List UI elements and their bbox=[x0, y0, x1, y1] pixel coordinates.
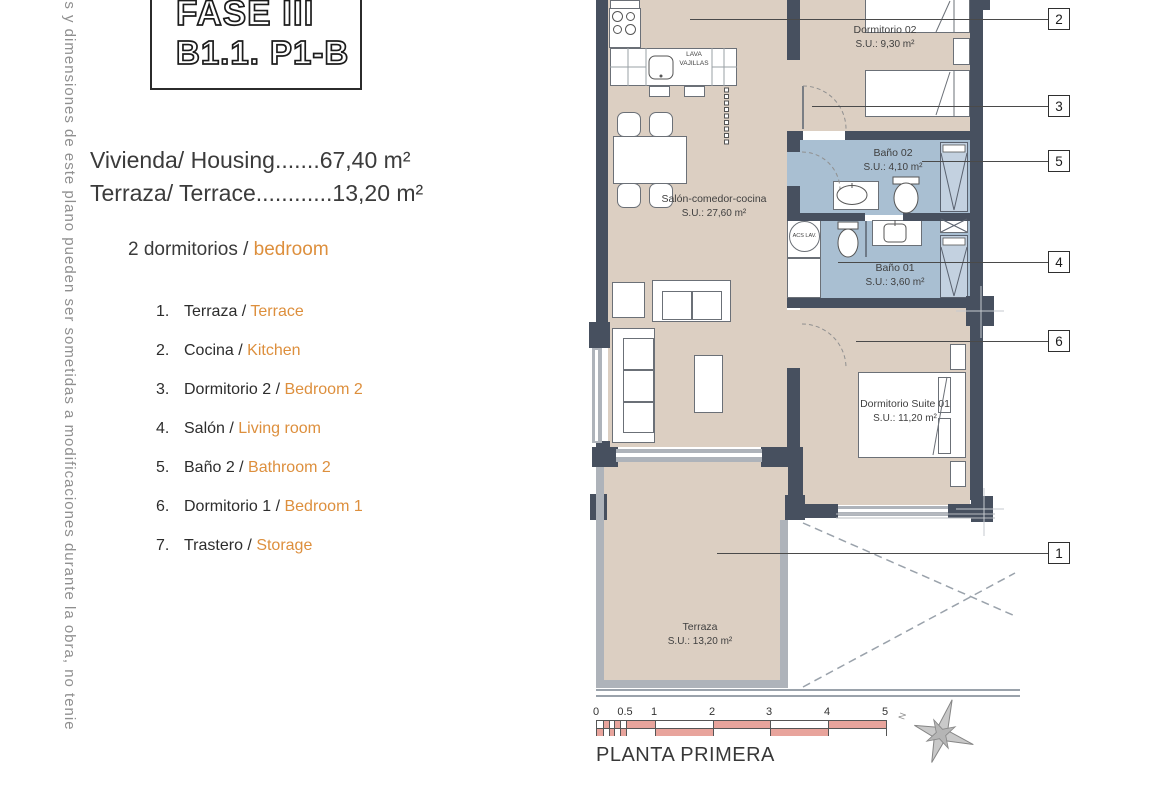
room-name: Dormitorio Suite 01 bbox=[835, 398, 975, 412]
room-area: S.U.: 3,60 m² bbox=[825, 276, 965, 289]
room-label-terrace: Terraza S.U.: 13,20 m² bbox=[630, 621, 770, 648]
hall-floor bbox=[787, 60, 800, 131]
water-heater-label: ACS LAV. bbox=[793, 233, 817, 240]
legend-es: Dormitorio 1 / bbox=[184, 498, 284, 515]
unit-code: B1.1. P1-B bbox=[176, 34, 360, 72]
room-label-suite: Dormitorio Suite 01 S.U.: 11,20 m² bbox=[835, 398, 975, 425]
window-core bbox=[616, 453, 762, 457]
nightstand bbox=[950, 461, 966, 487]
callout-kitchen: 2 bbox=[1048, 8, 1070, 30]
phase-title: FASE III bbox=[176, 0, 360, 34]
callout-terrace: 1 bbox=[1048, 542, 1070, 564]
bathroom1-vanity bbox=[872, 220, 922, 246]
floor-title: PLANTA PRIMERA bbox=[596, 744, 775, 767]
scale-tick: 0 bbox=[593, 706, 599, 718]
legend-en: Living room bbox=[238, 420, 321, 437]
bathroom2-vanity bbox=[833, 181, 879, 210]
legend-item-bano2: 5.Baño 2 / Bathroom 2 bbox=[156, 459, 363, 476]
scale-bar-graphic bbox=[596, 720, 887, 736]
room-legend: 1.Terraza / Terrace 2.Cocina / Kitchen 3… bbox=[156, 303, 363, 576]
legend-item-dormitorio1: 6.Dormitorio 1 / Bedroom 1 bbox=[156, 498, 363, 515]
scale-bar: 0 0.5 1 2 3 4 5 bbox=[594, 706, 890, 742]
wall-pillar bbox=[589, 322, 610, 348]
legend-es: Salón / bbox=[184, 420, 238, 437]
legend-en: Storage bbox=[256, 537, 312, 554]
legend-num: 6. bbox=[156, 498, 184, 515]
area-summary: Vivienda/ Housing.......67,40 m² Terraza… bbox=[90, 144, 423, 210]
wall-segment bbox=[970, 0, 983, 500]
window-core bbox=[595, 350, 598, 441]
room-area: S.U.: 11,20 m² bbox=[835, 412, 975, 425]
bed-single bbox=[865, 70, 970, 117]
legend-en: Terrace bbox=[250, 303, 303, 320]
water-heater-icon: ACS LAV. bbox=[789, 221, 820, 252]
legend-num: 1. bbox=[156, 303, 184, 320]
phase-title-box: FASE III B1.1. P1-B bbox=[150, 0, 362, 90]
scale-tick: 5 bbox=[882, 706, 888, 718]
legend-es: Baño 2 / bbox=[184, 459, 248, 476]
wall-segment bbox=[800, 504, 838, 518]
scale-tick: 4 bbox=[824, 706, 830, 718]
wall-pillar bbox=[971, 496, 993, 522]
terrace-area-line: Terraza/ Terrace............13,20 m² bbox=[90, 177, 423, 210]
room-label-bathroom1: Baño 01 S.U.: 3,60 m² bbox=[825, 262, 965, 289]
nightstand bbox=[950, 344, 966, 370]
terrace-floor bbox=[604, 462, 788, 684]
dining-table bbox=[613, 136, 687, 184]
scale-tick: 2 bbox=[709, 706, 715, 718]
room-label-salon: Salón-comedor-cocina S.U.: 27,60 m² bbox=[644, 193, 784, 220]
legend-item-terraza: 1.Terraza / Terrace bbox=[156, 303, 363, 320]
side-table bbox=[612, 282, 645, 318]
room-name: Baño 02 bbox=[823, 147, 963, 161]
legend-en: Bedroom 1 bbox=[284, 498, 362, 515]
leader-line bbox=[922, 161, 1048, 162]
sofa-three-seat bbox=[612, 328, 655, 443]
coffee-table bbox=[694, 355, 723, 413]
wall-segment bbox=[596, 0, 608, 322]
legend-num: 2. bbox=[156, 342, 184, 359]
room-label-bedroom2: Dormitorio 02 S.U.: 9,30 m² bbox=[815, 24, 955, 51]
wall-segment bbox=[787, 368, 800, 447]
terrace-wall bbox=[780, 520, 788, 688]
floorplan-page: es y dimensiones de este plano pueden se… bbox=[0, 0, 1170, 785]
legend-es: Trastero / bbox=[184, 537, 256, 554]
stool bbox=[684, 86, 705, 97]
compass-north-label: N bbox=[896, 711, 908, 721]
legend-item-trastero: 7.Trastero / Storage bbox=[156, 537, 363, 554]
bedrooms-subtitle-es: 2 dormitorios / bbox=[128, 239, 254, 260]
room-name: Baño 01 bbox=[825, 262, 965, 276]
leader-line bbox=[856, 341, 1048, 342]
wall-pillar bbox=[972, 0, 990, 10]
legend-es: Terraza / bbox=[184, 303, 250, 320]
dishwasher-label: LAVA VAJILLAS bbox=[672, 51, 716, 69]
dining-chair bbox=[617, 112, 641, 137]
wall-segment bbox=[592, 447, 618, 467]
callout-living: 4 bbox=[1048, 251, 1070, 273]
stove bbox=[609, 8, 641, 48]
stool bbox=[649, 86, 670, 97]
legend-num: 3. bbox=[156, 381, 184, 398]
window-core bbox=[838, 509, 948, 512]
wall-segment bbox=[787, 298, 982, 308]
wall-pillar bbox=[966, 296, 994, 326]
legend-en: Bathroom 2 bbox=[248, 459, 331, 476]
suite-hall-floor bbox=[787, 310, 800, 368]
room-area: S.U.: 13,20 m² bbox=[630, 635, 770, 648]
wall-segment bbox=[788, 447, 803, 497]
room-name: Salón-comedor-cocina bbox=[644, 193, 784, 207]
room-area: S.U.: 27,60 m² bbox=[644, 207, 784, 220]
legend-en: Bedroom 2 bbox=[284, 381, 362, 398]
room-area: S.U.: 9,30 m² bbox=[815, 38, 955, 51]
legend-num: 5. bbox=[156, 459, 184, 476]
wall-segment bbox=[787, 0, 800, 60]
wall-segment bbox=[787, 140, 800, 152]
room-name: Terraza bbox=[630, 621, 770, 635]
sofa-two-seat bbox=[652, 280, 731, 322]
bedrooms-subtitle-en: bedroom bbox=[254, 239, 329, 260]
dining-chair bbox=[649, 112, 673, 137]
nightstand bbox=[953, 38, 970, 65]
legend-item-cocina: 2.Cocina / Kitchen bbox=[156, 342, 363, 359]
margin-disclaimer-text: es y dimensiones de este plano pueden se… bbox=[50, 0, 78, 785]
legend-es: Dormitorio 2 / bbox=[184, 381, 284, 398]
wall-segment bbox=[787, 186, 800, 215]
room-name: Dormitorio 02 bbox=[815, 24, 955, 38]
wall-segment bbox=[948, 504, 972, 518]
callout-bathroom2: 5 bbox=[1048, 150, 1070, 172]
legend-num: 4. bbox=[156, 420, 184, 437]
legend-item-salon: 4.Salón / Living room bbox=[156, 420, 363, 437]
legend-en: Kitchen bbox=[247, 342, 300, 359]
leader-line bbox=[838, 262, 1048, 263]
scale-tick: 3 bbox=[766, 706, 772, 718]
leader-line bbox=[717, 553, 1048, 554]
wall-segment bbox=[787, 131, 803, 140]
room-area: S.U.: 4,10 m² bbox=[823, 161, 963, 174]
leader-line bbox=[690, 19, 1048, 20]
dining-chair bbox=[617, 183, 641, 208]
scale-tick: 1 bbox=[651, 706, 657, 718]
legend-item-dormitorio2: 3.Dormitorio 2 / Bedroom 2 bbox=[156, 381, 363, 398]
callout-bedroom1: 6 bbox=[1048, 330, 1070, 352]
callout-bedroom2: 3 bbox=[1048, 95, 1070, 117]
bedrooms-subtitle: 2 dormitorios / bedroom bbox=[128, 239, 329, 261]
legend-num: 7. bbox=[156, 537, 184, 554]
storage-shelf bbox=[787, 258, 821, 298]
legend-es: Cocina / bbox=[184, 342, 247, 359]
housing-area-line: Vivienda/ Housing.......67,40 m² bbox=[90, 144, 423, 177]
wall-segment bbox=[845, 131, 982, 140]
wall-segment bbox=[787, 213, 865, 221]
scale-tick: 0.5 bbox=[617, 706, 632, 718]
leader-line bbox=[812, 106, 1048, 107]
terrace-wall bbox=[596, 467, 604, 680]
compass-icon bbox=[905, 691, 984, 773]
terrace-wall bbox=[596, 680, 788, 688]
